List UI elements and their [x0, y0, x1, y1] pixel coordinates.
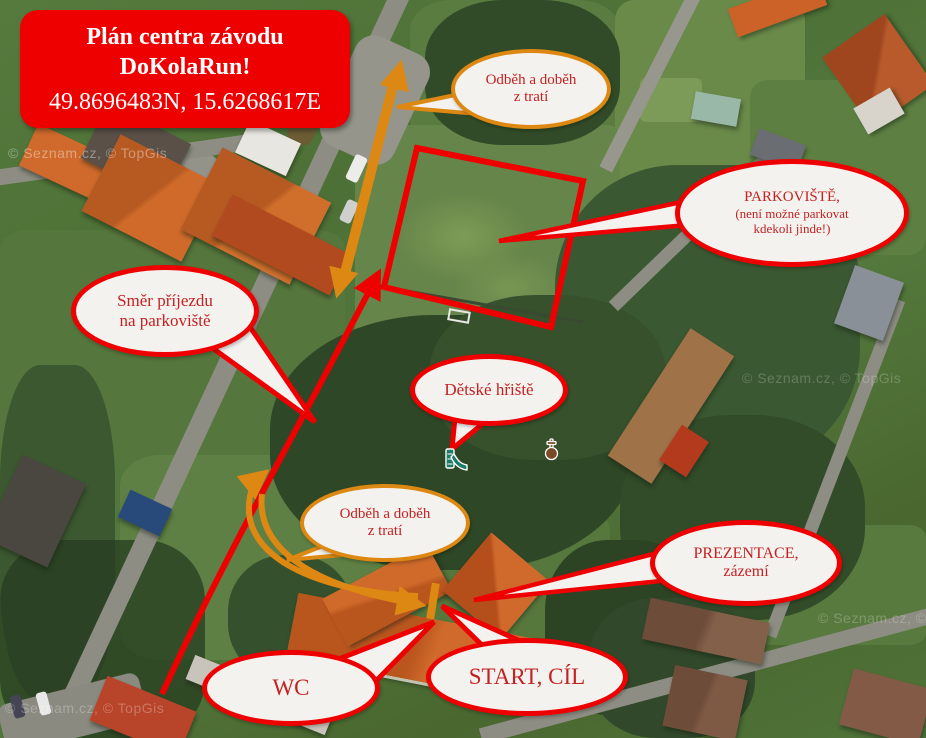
callout-text: START, CÍL [469, 664, 585, 690]
plan-coordinates: 49.8696483N, 15.6268617E [49, 89, 321, 116]
map-attribution: © Seznam.cz, © TopGis [742, 370, 901, 386]
callout-prezentace: PREZENTACE, zázemí [650, 520, 842, 606]
callout-text: Odběh a doběh [486, 72, 577, 89]
playground-icon [444, 446, 468, 473]
map-attribution: © Seznam.cz, © TopGis [8, 145, 167, 161]
map-attribution: © Seznam.cz, © TopGis [818, 610, 926, 626]
monument-cross-icon [543, 438, 560, 461]
race-plan-map: © Seznam.cz, © TopGis © Seznam.cz, © Top… [0, 0, 926, 738]
callout-start-cil: START, CÍL [426, 638, 628, 716]
callout-text: kdekoli jinde!) [754, 222, 831, 237]
callout-parkoviste: PARKOVIŠTĚ, (není možné parkovat kdekoli… [675, 159, 909, 267]
plan-title-line1: Plán centra závodu [86, 22, 283, 52]
callout-wc: WC [202, 650, 380, 726]
callout-text: PARKOVIŠTĚ, [744, 189, 840, 206]
callout-text: Odběh a doběh [340, 506, 431, 523]
callout-text: na parkoviště [119, 311, 210, 331]
callout-text: z tratí [368, 523, 403, 540]
map-attribution: © Seznam.cz, © TopGis [5, 700, 164, 716]
callout-text: Dětské hřiště [444, 380, 533, 400]
plan-title-box: Plán centra závodu DoKolaRun! 49.8696483… [20, 10, 350, 128]
callout-odbeh-top: Odběh a doběh z tratí [451, 49, 611, 129]
callout-text: z tratí [514, 89, 549, 106]
callout-smer-prijezdu: Směr příjezdu na parkoviště [71, 265, 259, 357]
callout-text: WC [272, 675, 309, 701]
callout-detske-hriste: Dětské hřiště [410, 354, 568, 426]
callout-text: zázemí [723, 563, 768, 581]
building-roof [839, 668, 926, 738]
callout-text: (není možné parkovat [735, 207, 848, 222]
callout-odbeh-mid: Odběh a doběh z tratí [300, 484, 470, 562]
plan-title-line2: DoKolaRun! [120, 52, 251, 82]
callout-text: PREZENTACE, [694, 545, 799, 563]
callout-text: Směr příjezdu [117, 291, 213, 311]
